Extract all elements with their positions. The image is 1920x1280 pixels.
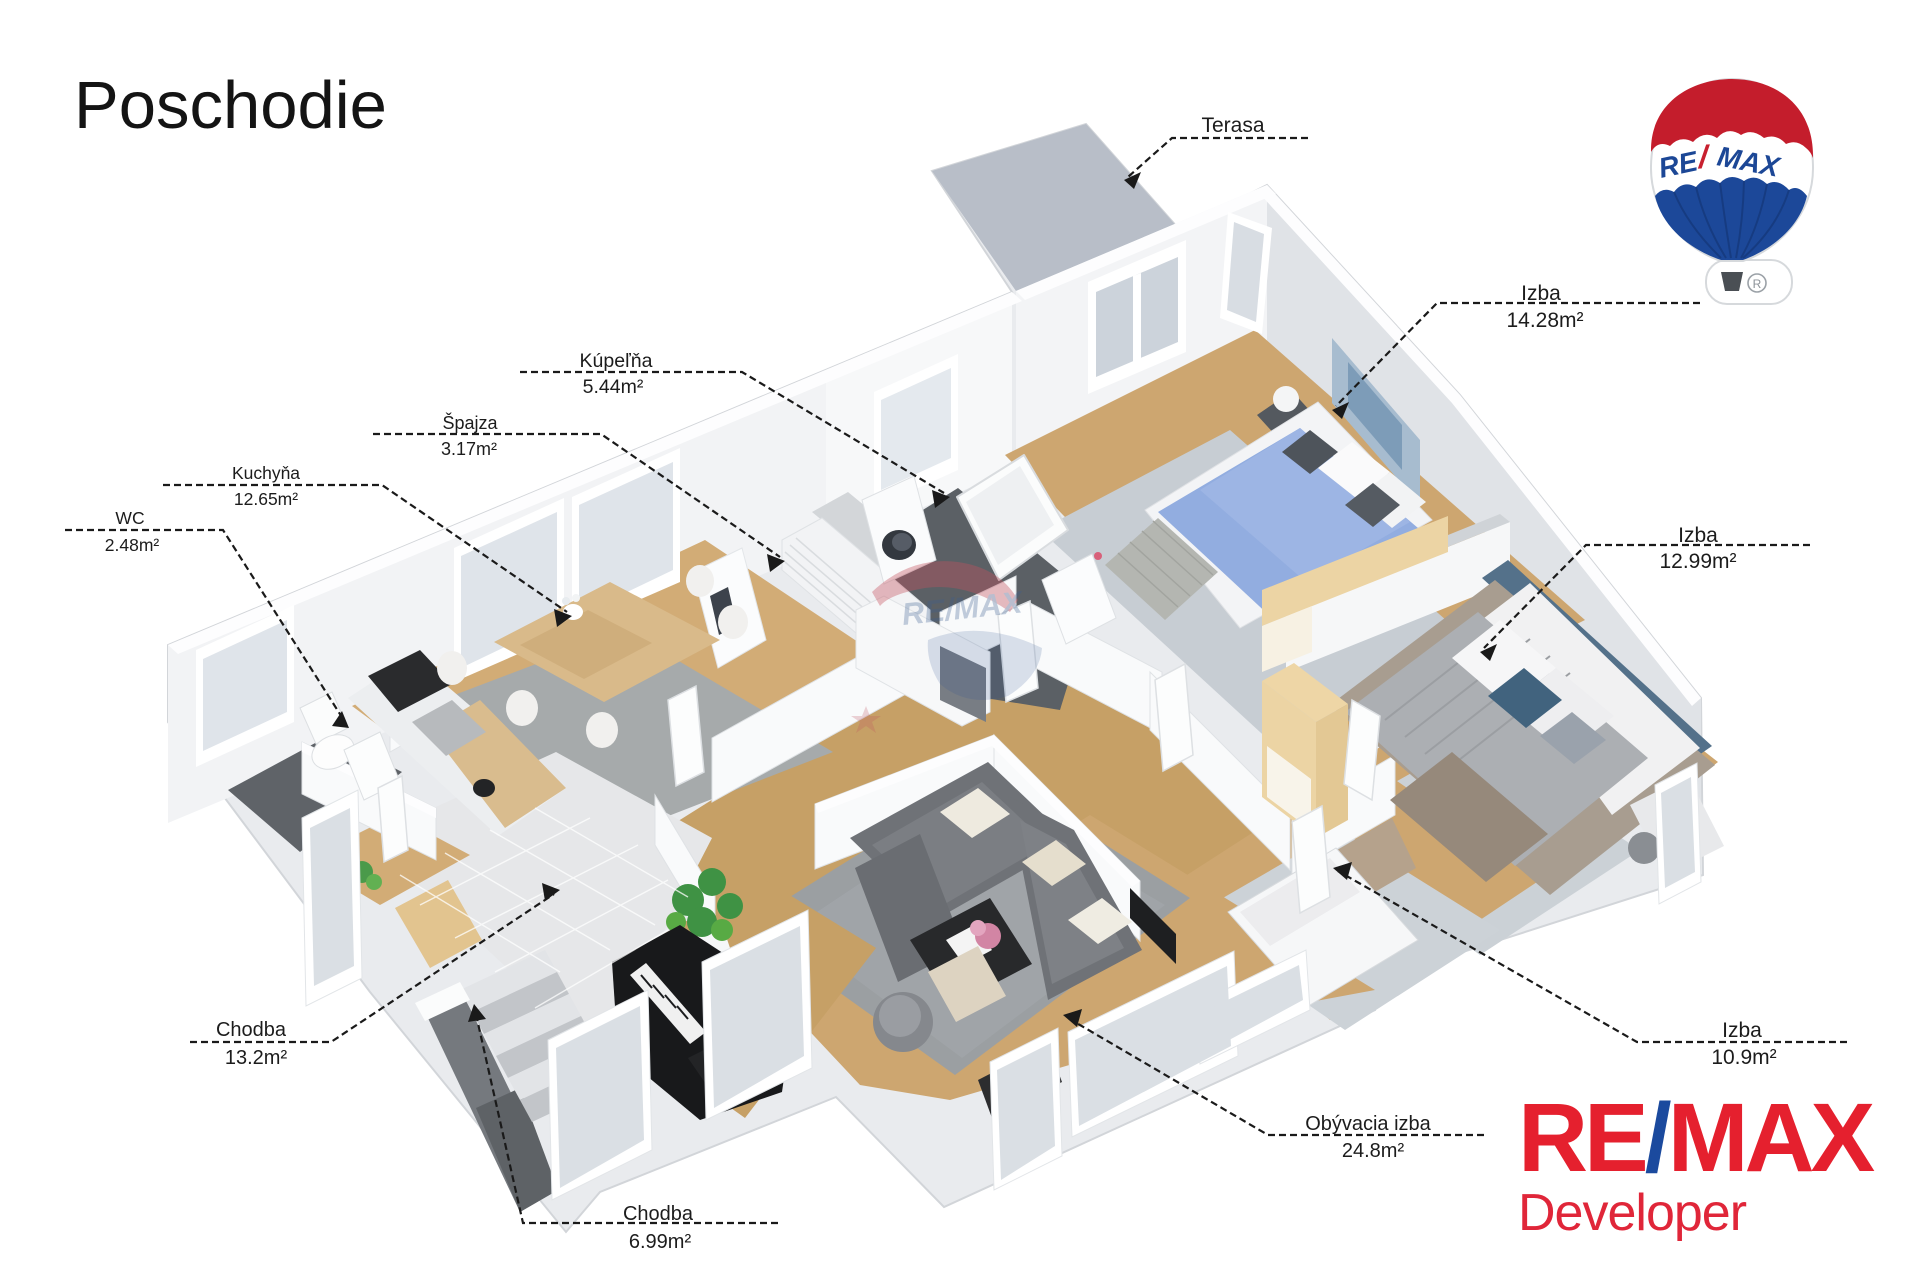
svg-text:WC: WC [115, 508, 144, 528]
svg-text:Poschodie: Poschodie [74, 68, 387, 143]
svg-text:Izba: Izba [1722, 1019, 1762, 1042]
svg-text:R: R [1753, 277, 1762, 291]
svg-text:10.9m²: 10.9m² [1711, 1046, 1776, 1069]
svg-text:Obývacia izba: Obývacia izba [1305, 1113, 1431, 1135]
svg-text:13.2m²: 13.2m² [225, 1047, 288, 1069]
svg-text:2.48m²: 2.48m² [105, 535, 160, 555]
svg-text:RE/MAX: RE/MAX [1518, 1083, 1875, 1192]
svg-text:6.99m²: 6.99m² [629, 1231, 692, 1253]
svg-text:14.28m²: 14.28m² [1506, 309, 1583, 332]
svg-text:12.99m²: 12.99m² [1659, 550, 1736, 573]
svg-text:Terasa: Terasa [1201, 114, 1264, 137]
svg-text:Chodba: Chodba [216, 1019, 287, 1041]
svg-text:Developer: Developer [1518, 1184, 1747, 1242]
svg-text:Izba: Izba [1678, 524, 1718, 547]
svg-text:5.44m²: 5.44m² [583, 376, 644, 398]
svg-text:3.17m²: 3.17m² [441, 439, 497, 459]
svg-text:12.65m²: 12.65m² [234, 489, 298, 509]
svg-text:24.8m²: 24.8m² [1342, 1140, 1405, 1162]
svg-text:Chodba: Chodba [623, 1203, 694, 1225]
svg-text:Špajza: Špajza [442, 412, 498, 433]
svg-text:Kuchyňa: Kuchyňa [232, 463, 300, 483]
svg-text:Kúpeľňa: Kúpeľňa [580, 350, 653, 372]
svg-text:Izba: Izba [1521, 282, 1561, 305]
